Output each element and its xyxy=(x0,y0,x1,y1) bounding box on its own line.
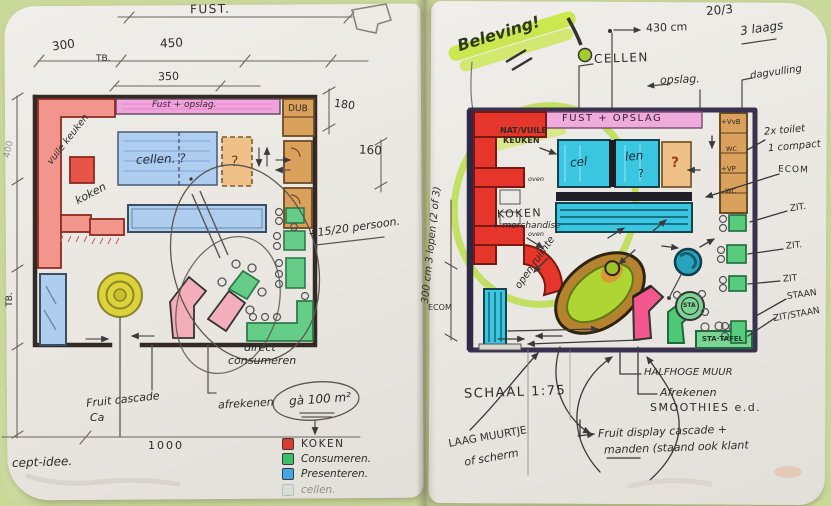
len-label: len xyxy=(625,149,644,163)
schaal-note: SCHAAL 1:75 xyxy=(464,384,567,401)
legend-swatch-koken xyxy=(282,438,294,450)
legend-label-presenteren: Presenteren. xyxy=(301,468,368,480)
cel-label: cel xyxy=(570,155,588,168)
dim-fust-label: FUST. xyxy=(190,3,231,16)
left-sketch-page xyxy=(4,4,423,501)
sta-circle-label: STA xyxy=(683,303,696,309)
ecom-left-label: ECOM xyxy=(428,304,452,312)
legend-label-koken: KOKEN xyxy=(301,438,344,450)
legend-swatch-presenteren xyxy=(282,468,294,480)
oven-label-1: oven xyxy=(528,176,544,183)
dim-430-label: 430 cm xyxy=(646,21,688,33)
zit3-note: ZIT xyxy=(783,274,798,284)
cellen-label: cellen. ? xyxy=(136,152,186,166)
sketchbook-photo: FUST. 300 450 TB. 350 180 160 1000 TB. 4… xyxy=(0,0,831,506)
nat-vuile-line1: NAT/VUILE xyxy=(500,127,547,135)
opslag-callout: opslag. xyxy=(660,73,700,85)
koken-sub-label: + merchandise xyxy=(492,222,561,231)
dim-450-label: 450 xyxy=(160,36,184,49)
legend-swatch-cellen xyxy=(282,484,294,496)
zit2-note: ZIT. xyxy=(786,241,803,251)
cellen-callout: CELLEN xyxy=(594,51,649,65)
vvb-label: +VvB xyxy=(721,119,741,126)
legend-item-cellen: cellen. xyxy=(282,484,336,496)
legend-label-cellen: cellen. xyxy=(301,484,336,496)
fust-opslag-band-right: FUST + OPSLAG xyxy=(562,114,662,124)
dim-side-tb-label: TB. xyxy=(6,292,15,307)
dim-180-label: 180 xyxy=(333,98,355,112)
orange-question-right: ? xyxy=(671,156,679,170)
legend-swatch-consumeren xyxy=(282,453,294,465)
dub-label: DUB xyxy=(288,105,308,115)
smoothies-note: SMOOTHIES e.d. xyxy=(650,402,761,413)
afrekenen-right-note: Afrekenen xyxy=(660,387,717,398)
ecom-note: ECOM xyxy=(778,165,809,175)
vp-label: +VP xyxy=(721,166,736,173)
dim-tb-label: TB. xyxy=(96,55,111,64)
wc2-label: WC xyxy=(725,188,736,195)
dim-300-label: 300 xyxy=(51,37,75,52)
legend-item-koken: KOKEN xyxy=(282,438,344,450)
dim-160-label: 160 xyxy=(359,143,383,156)
oven-label-2: oven xyxy=(528,231,544,238)
legend-label-consumeren: Consumeren. xyxy=(301,453,371,465)
wc1-label: WC xyxy=(726,146,737,153)
legend-item-presenteren: Presenteren. xyxy=(282,468,368,480)
nat-vuile-line2: KEUKEN xyxy=(503,137,540,145)
date-note: 20/3 xyxy=(706,3,734,17)
cyan-question-label: ? xyxy=(638,168,644,179)
ca-note: Ca xyxy=(90,412,104,423)
dim-350-label: 350 xyxy=(158,71,179,83)
dim-1000-label: 1000 xyxy=(148,440,184,451)
legend-item-consumeren: Consumeren. xyxy=(282,453,371,465)
concept-note: cept-idee. xyxy=(12,455,73,469)
fust-opslag-band-label: Fust + opslag. xyxy=(152,101,217,110)
direct-note-line2: consumeren xyxy=(228,355,296,366)
sta-tafel-label: STA·TAFEL xyxy=(702,336,743,343)
koken-right-label: KOKEN xyxy=(497,207,543,220)
direct-note-line1: direct' xyxy=(244,342,279,353)
halfhoge-muur-note: HALFHOGE MUUR xyxy=(644,368,733,378)
orange-question-label: ? xyxy=(231,155,238,169)
afrekenen-note: afrekenen xyxy=(218,397,274,411)
